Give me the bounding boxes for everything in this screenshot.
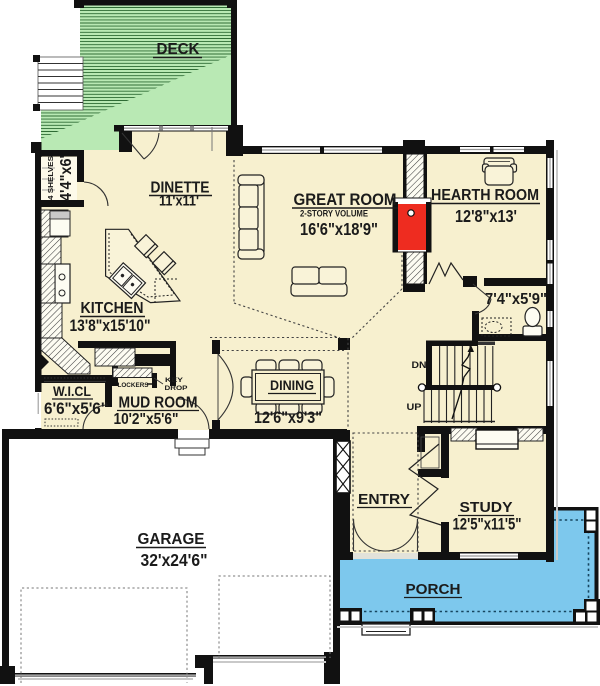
svg-text:DECK: DECK bbox=[157, 41, 200, 58]
svg-text:W.I.CL: W.I.CL bbox=[53, 384, 91, 399]
svg-text:LOCKERS: LOCKERS bbox=[118, 382, 149, 389]
svg-text:16'6"x18'9": 16'6"x18'9" bbox=[300, 219, 378, 239]
svg-text:12'5"x11'5": 12'5"x11'5" bbox=[453, 515, 522, 534]
svg-text:6'6"x5'6": 6'6"x5'6" bbox=[44, 400, 108, 418]
svg-text:DN: DN bbox=[412, 360, 427, 371]
svg-text:STUDY: STUDY bbox=[460, 499, 513, 516]
svg-text:DROP: DROP bbox=[165, 385, 189, 392]
svg-text:4 SHELVES: 4 SHELVES bbox=[46, 156, 55, 200]
svg-text:4'4"x6': 4'4"x6' bbox=[58, 155, 75, 201]
svg-text:HEARTH ROOM: HEARTH ROOM bbox=[431, 187, 539, 204]
svg-text:ENTRY: ENTRY bbox=[358, 492, 410, 508]
svg-text:MUD ROOM: MUD ROOM bbox=[119, 395, 198, 412]
svg-text:2-STORY VOLUME: 2-STORY VOLUME bbox=[300, 209, 368, 220]
svg-text:PORCH: PORCH bbox=[406, 582, 461, 598]
svg-text:11'x11': 11'x11' bbox=[159, 193, 199, 210]
svg-text:KITCHEN: KITCHEN bbox=[81, 300, 144, 317]
svg-text:UP: UP bbox=[407, 402, 423, 413]
svg-text:DINING: DINING bbox=[270, 378, 314, 393]
svg-text:12'8"x13': 12'8"x13' bbox=[455, 206, 517, 226]
svg-text:32'x24'6": 32'x24'6" bbox=[141, 550, 208, 570]
svg-text:GARAGE: GARAGE bbox=[138, 531, 205, 548]
svg-text:13'8"x15'10": 13'8"x15'10" bbox=[70, 316, 151, 335]
svg-text:12'6"x9'3": 12'6"x9'3" bbox=[254, 408, 322, 427]
svg-text:10'2"x5'6": 10'2"x5'6" bbox=[114, 411, 179, 428]
svg-text:GREAT ROOM: GREAT ROOM bbox=[294, 191, 397, 209]
svg-text:KEY: KEY bbox=[165, 377, 184, 384]
svg-text:7'4"x5'9": 7'4"x5'9" bbox=[485, 291, 547, 308]
